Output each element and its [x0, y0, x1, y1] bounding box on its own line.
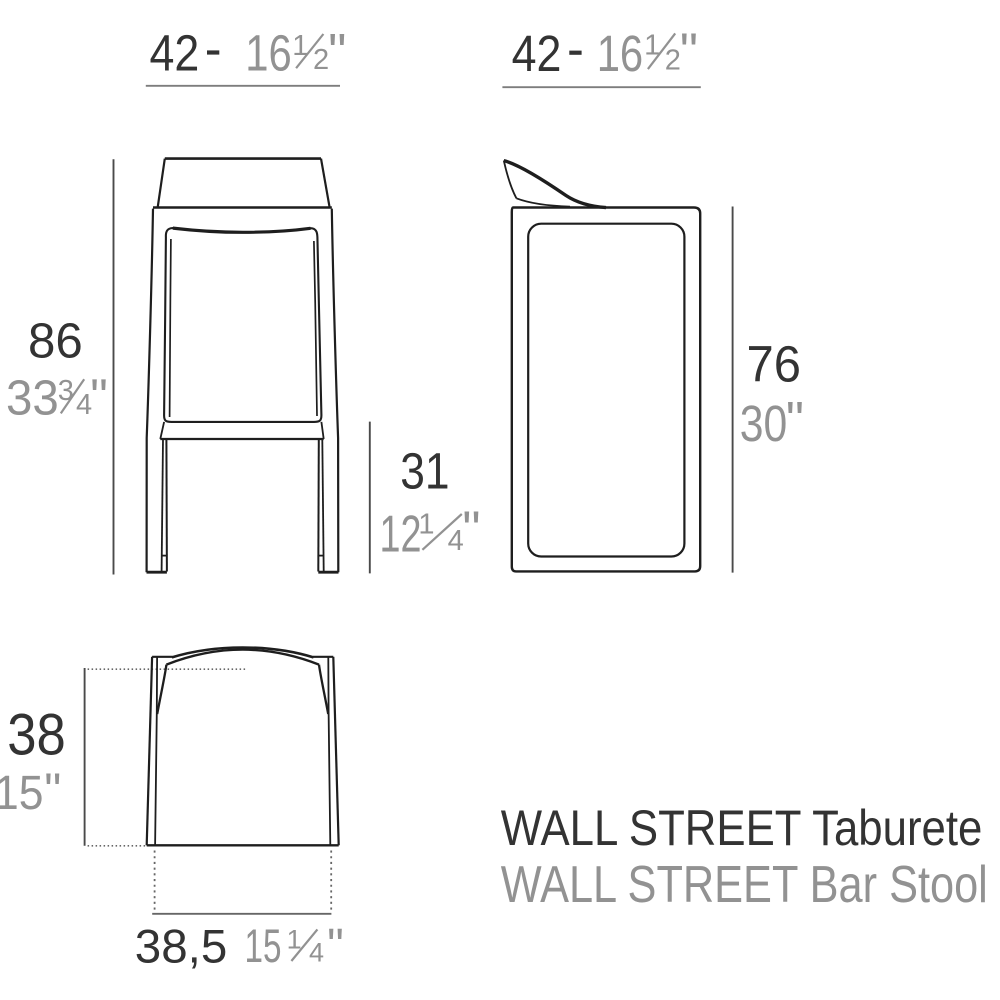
svg-text:33: 33 — [6, 370, 59, 425]
svg-text:76: 76 — [747, 335, 802, 392]
svg-text:": " — [786, 391, 804, 448]
svg-text:WALL STREET Taburete: WALL STREET Taburete — [501, 799, 983, 856]
svg-text:16: 16 — [597, 25, 644, 82]
svg-text:38: 38 — [7, 702, 66, 767]
svg-text:WALL STREET Bar Stool: WALL STREET Bar Stool — [501, 856, 988, 914]
svg-text:": " — [327, 918, 344, 971]
svg-text:": " — [44, 765, 61, 818]
svg-text:86: 86 — [28, 313, 83, 368]
svg-text:3: 3 — [58, 375, 74, 407]
svg-text:12: 12 — [380, 504, 422, 562]
svg-text:15: 15 — [245, 919, 282, 972]
svg-text:": " — [328, 23, 346, 80]
svg-text:42: 42 — [150, 25, 200, 82]
svg-text:31: 31 — [400, 443, 449, 500]
svg-text:": " — [680, 22, 698, 79]
svg-text:4: 4 — [448, 525, 464, 557]
svg-text:": " — [462, 501, 480, 558]
svg-text:38,5: 38,5 — [135, 919, 228, 972]
svg-text:1: 1 — [418, 508, 434, 540]
svg-text:15: 15 — [0, 767, 44, 820]
svg-text:30: 30 — [740, 395, 788, 452]
svg-text:2: 2 — [313, 44, 329, 76]
svg-text:2: 2 — [665, 45, 681, 77]
svg-text:16: 16 — [245, 25, 291, 82]
svg-text:4: 4 — [309, 938, 324, 968]
svg-text:42: 42 — [512, 25, 562, 82]
svg-text:": " — [90, 369, 108, 424]
